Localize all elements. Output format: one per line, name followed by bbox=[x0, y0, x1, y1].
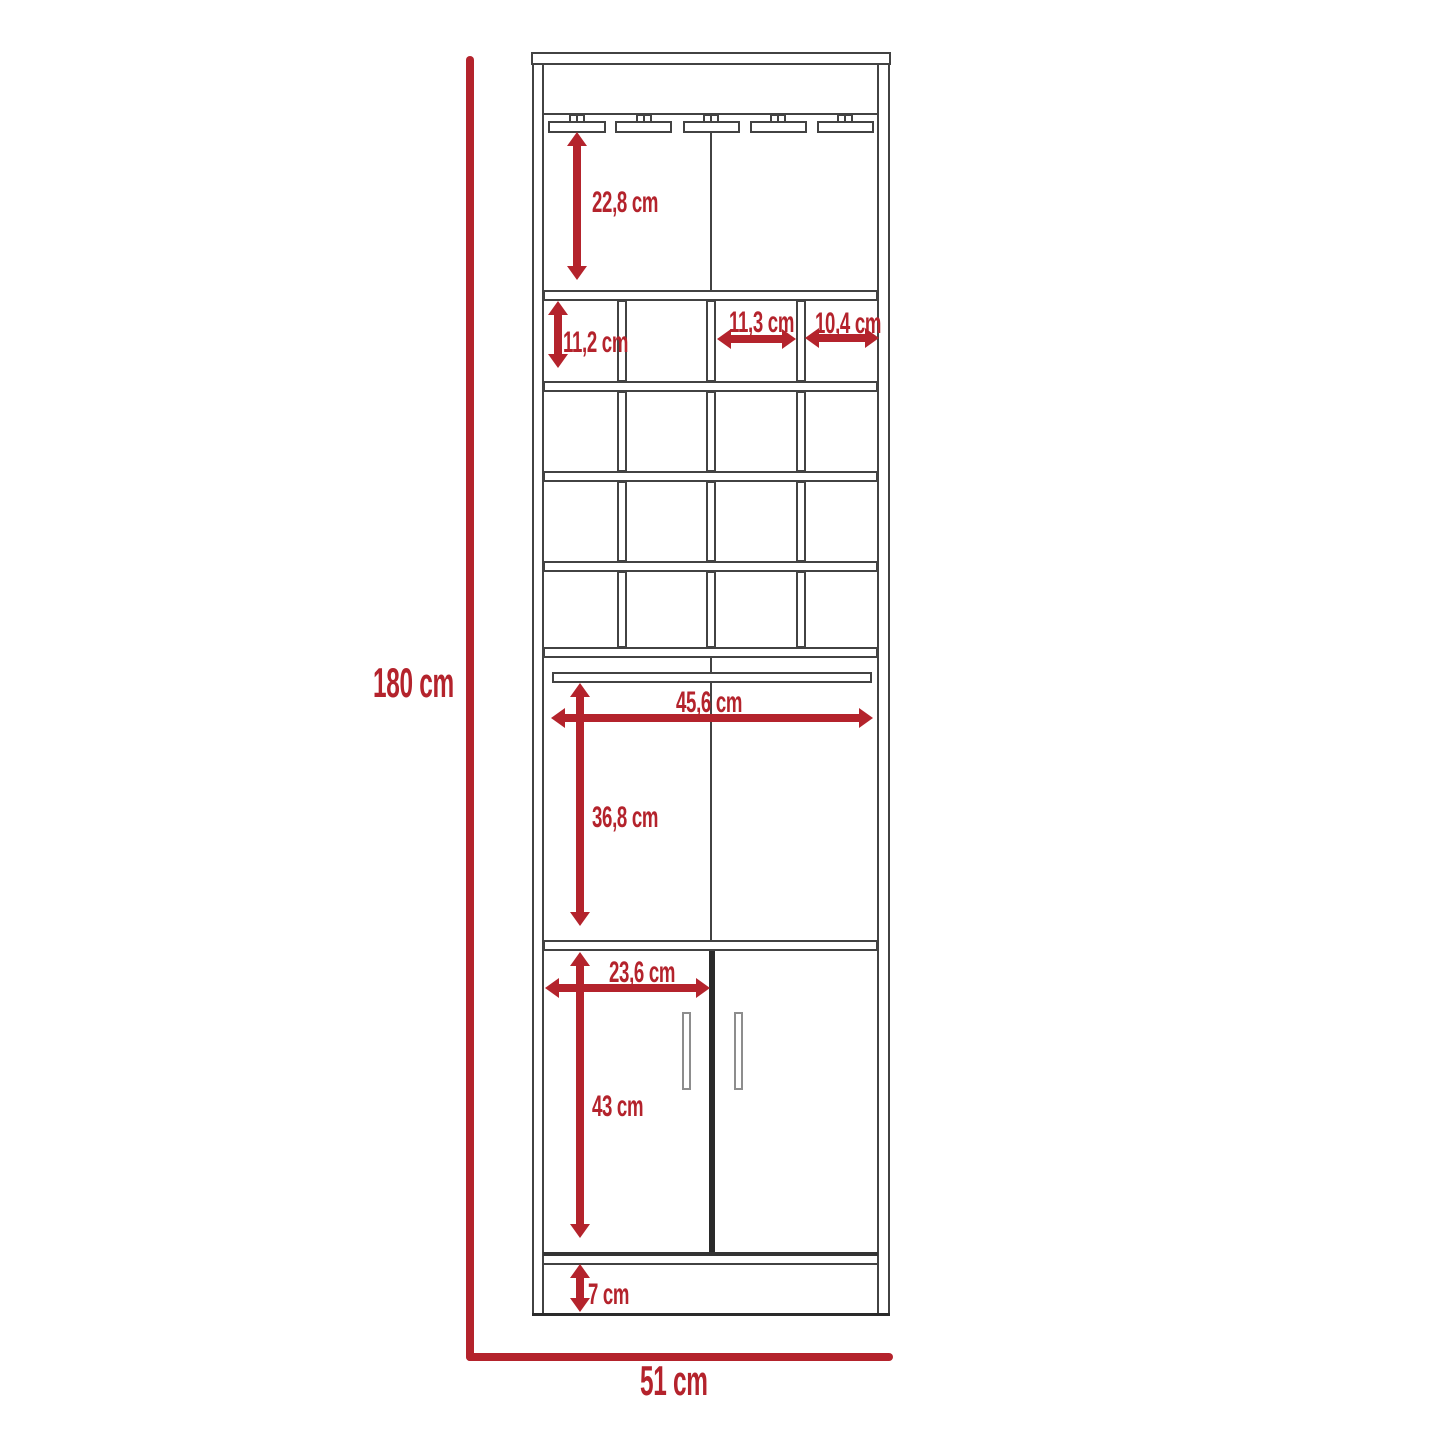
cubby-divider bbox=[796, 391, 806, 472]
overall-height-line bbox=[466, 56, 474, 1361]
cubby-divider bbox=[796, 571, 806, 648]
cubby-divider bbox=[617, 571, 627, 648]
dim-label-stemware-height: 22,8 cm bbox=[592, 188, 658, 218]
stemware-rack-rail bbox=[817, 121, 874, 133]
dim-label-cubby-height: 11,2 cm bbox=[563, 328, 628, 358]
door-bottom-edge bbox=[543, 1252, 878, 1256]
cubby-divider bbox=[617, 391, 627, 472]
dim-label-open-compartment-height: 36,8 cm bbox=[592, 803, 658, 833]
door-panel-right bbox=[715, 952, 877, 1252]
dimension-diagram: 22,8 cm 11,2 cm 11,3 cm 10,4 cm 45,6 cm … bbox=[0, 0, 1445, 1445]
dim-label-cubby-width-third: 11,3 cm bbox=[729, 308, 794, 338]
dim-arrow-cubby-height bbox=[554, 314, 562, 355]
cabinet-side-right-outer bbox=[888, 65, 890, 1316]
dim-label-door-height: 43 cm bbox=[592, 1092, 643, 1122]
cubby-divider bbox=[706, 571, 716, 648]
dim-label-door-width: 23,6 cm bbox=[609, 958, 675, 988]
dim-arrow-stemware-height bbox=[573, 145, 581, 267]
stemware-rack-rail bbox=[750, 121, 807, 133]
cubby-divider bbox=[706, 391, 716, 472]
door-handle-left bbox=[682, 1012, 691, 1090]
plinth-top-line bbox=[543, 1263, 878, 1265]
dim-arrow-open-compartment-height bbox=[576, 696, 584, 913]
cubby-divider bbox=[617, 481, 627, 562]
cubby-divider bbox=[796, 481, 806, 562]
cabinet-bottom-edge bbox=[532, 1313, 890, 1316]
dim-arrow-door-height bbox=[576, 965, 584, 1225]
dim-label-overall-height: 180 cm bbox=[373, 662, 454, 704]
stemware-rack-rail bbox=[615, 121, 672, 133]
stemware-rack-rail bbox=[683, 121, 740, 133]
door-handle-right bbox=[734, 1012, 743, 1090]
stemware-section-divider bbox=[710, 133, 712, 292]
shelf-band bbox=[543, 940, 878, 951]
shelf-band bbox=[543, 647, 878, 658]
dim-arrow-plinth-height bbox=[576, 1277, 584, 1299]
dim-label-overall-width: 51 cm bbox=[640, 1360, 708, 1402]
cubby-divider bbox=[706, 300, 716, 382]
cubby-divider bbox=[706, 481, 716, 562]
cabinet-side-left-outer bbox=[532, 65, 534, 1316]
dim-label-cubby-width-fourth: 10,4 cm bbox=[815, 309, 881, 339]
cabinet-side-right-inner bbox=[877, 65, 879, 1313]
dim-label-plinth-height: 7 cm bbox=[588, 1280, 629, 1310]
dim-label-interior-width: 45,6 cm bbox=[676, 688, 742, 718]
cabinet-top-board bbox=[531, 52, 891, 65]
open-compartment-rail bbox=[552, 672, 872, 683]
